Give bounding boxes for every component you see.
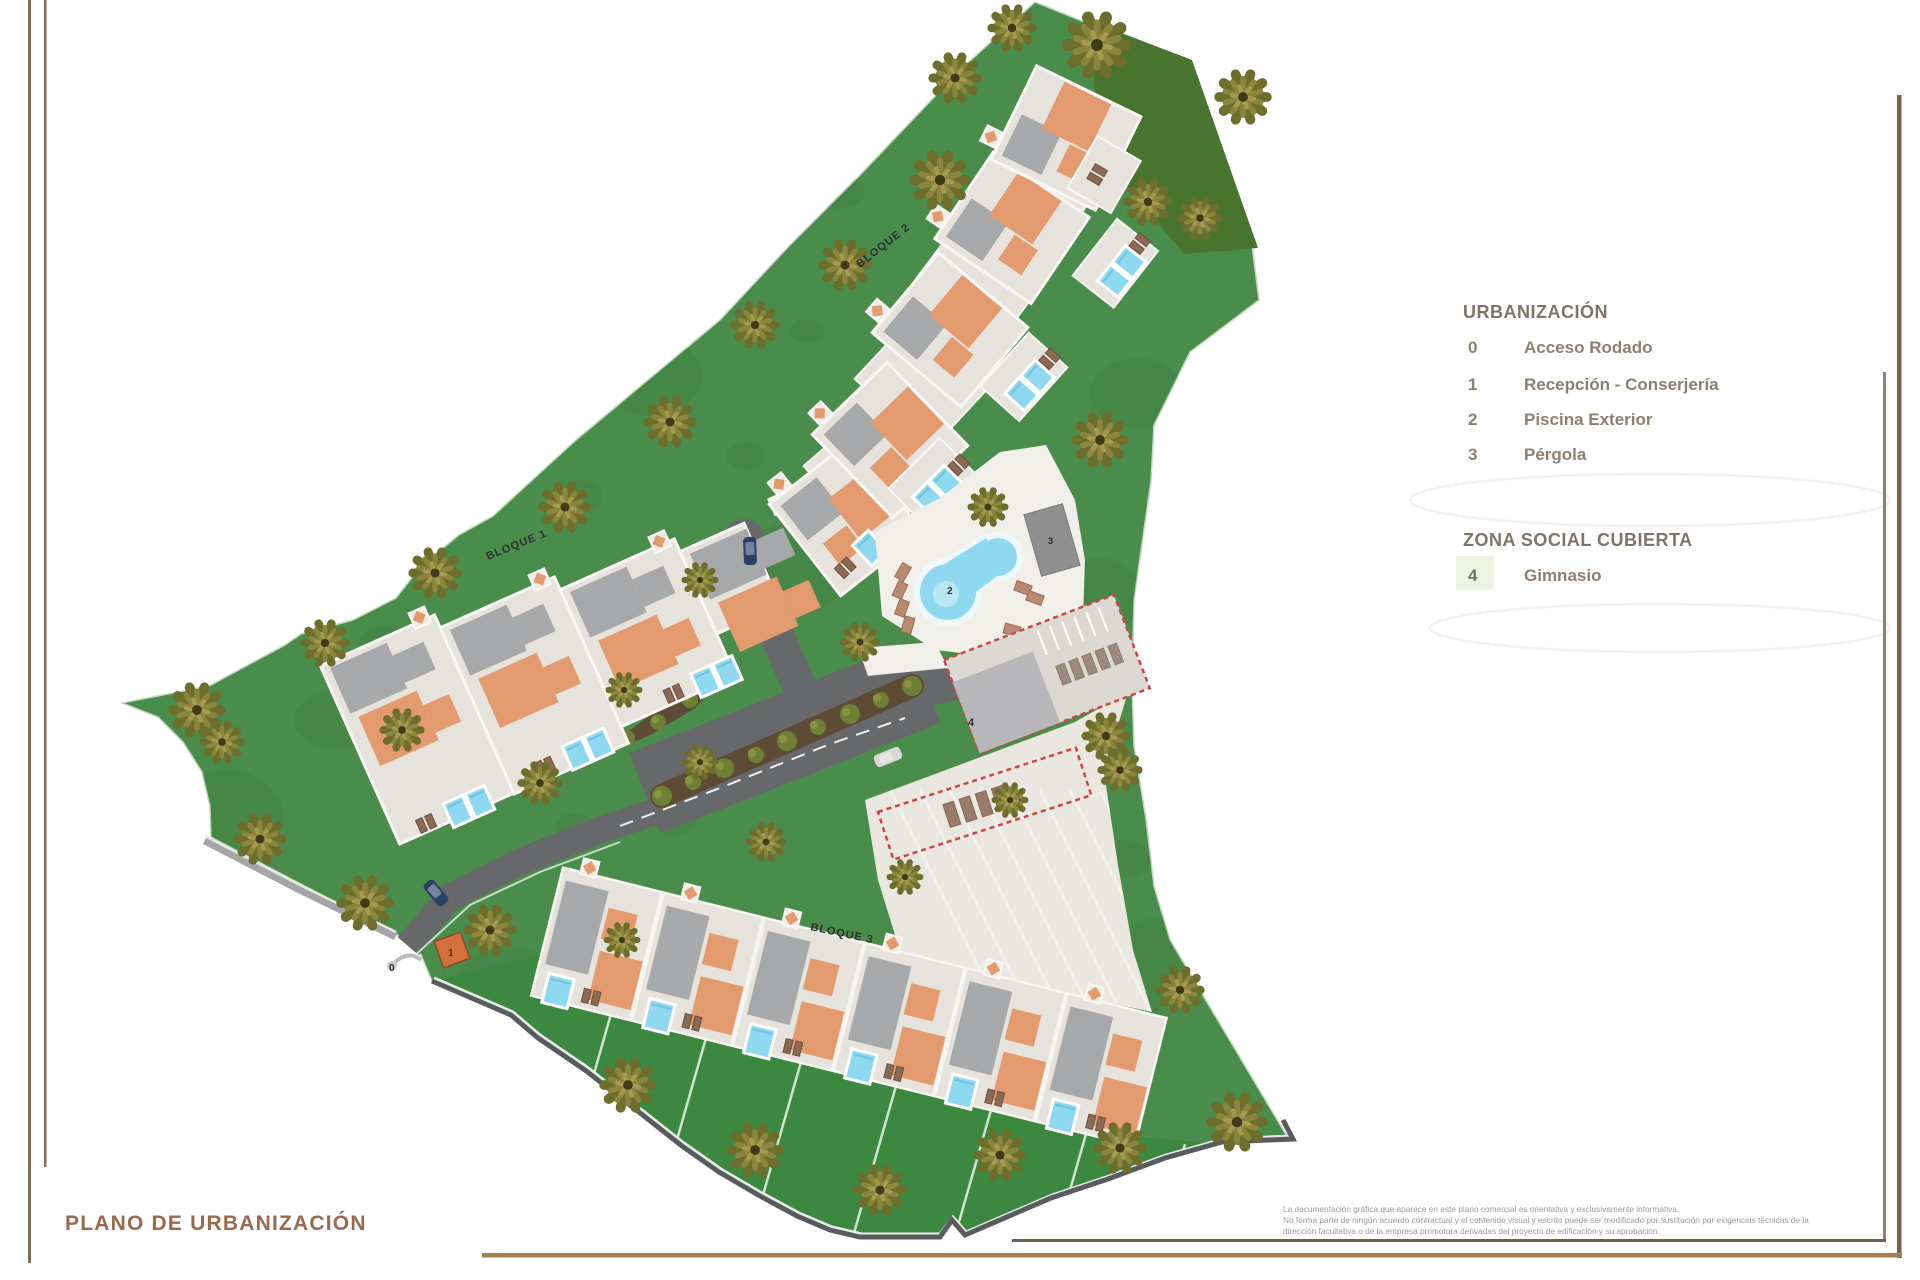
svg-text:3: 3 bbox=[1048, 536, 1053, 546]
svg-text:4: 4 bbox=[1468, 566, 1478, 585]
svg-text:Gimnasio: Gimnasio bbox=[1524, 566, 1601, 585]
svg-text:2: 2 bbox=[1468, 410, 1477, 429]
svg-text:ZONA SOCIAL CUBIERTA: ZONA SOCIAL CUBIERTA bbox=[1463, 530, 1693, 550]
svg-text:2: 2 bbox=[947, 586, 953, 597]
svg-text:1: 1 bbox=[448, 948, 454, 959]
svg-text:3: 3 bbox=[1468, 445, 1477, 464]
svg-text:Pérgola: Pérgola bbox=[1524, 445, 1587, 464]
svg-text:0: 0 bbox=[389, 963, 395, 974]
svg-text:Piscina Exterior: Piscina Exterior bbox=[1524, 410, 1653, 429]
svg-text:Acceso Rodado: Acceso Rodado bbox=[1524, 338, 1652, 357]
svg-text:1: 1 bbox=[1468, 375, 1477, 394]
svg-text:4: 4 bbox=[968, 717, 975, 729]
svg-text:Recepción - Conserjería: Recepción - Conserjería bbox=[1524, 375, 1719, 394]
svg-text:dirección facultativa o de la: dirección facultativa o de la empresa pr… bbox=[1283, 1226, 1660, 1236]
svg-text:No forma parte de ningún acuer: No forma parte de ningún acuerdo contrac… bbox=[1283, 1215, 1809, 1225]
svg-text:0: 0 bbox=[1468, 338, 1477, 357]
svg-text:PLANO DE URBANIZACIÓN: PLANO DE URBANIZACIÓN bbox=[65, 1211, 367, 1235]
svg-text:URBANIZACIÓN: URBANIZACIÓN bbox=[1463, 301, 1608, 322]
svg-text:La documentación gráfica que a: La documentación gráfica que aparece en … bbox=[1283, 1204, 1679, 1214]
